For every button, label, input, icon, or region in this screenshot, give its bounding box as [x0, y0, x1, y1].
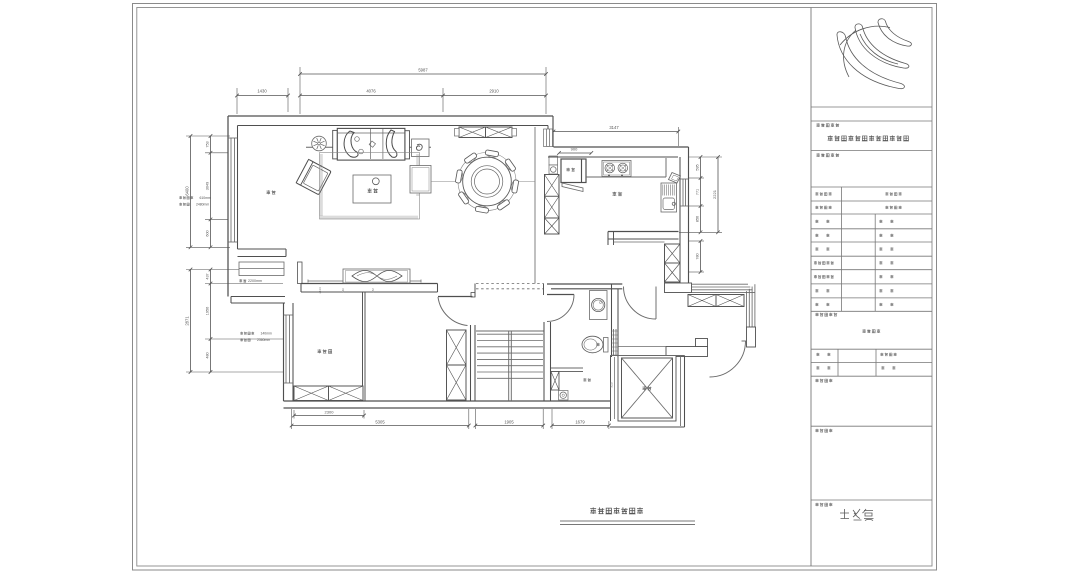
svg-text:3147: 3147	[609, 125, 619, 130]
svg-text:6400: 6400	[185, 186, 190, 196]
svg-text:2480mm: 2480mm	[196, 203, 209, 207]
svg-text:1679: 1679	[575, 420, 585, 425]
svg-text:752: 752	[371, 288, 375, 293]
svg-text:771: 771	[696, 189, 700, 195]
svg-text:780: 780	[696, 253, 700, 259]
svg-text:1905: 1905	[504, 420, 514, 425]
svg-text:5305: 5305	[375, 420, 385, 425]
svg-text:2221: 2221	[712, 189, 717, 199]
svg-text:1956: 1956	[206, 307, 210, 315]
svg-text:1430: 1430	[257, 89, 267, 94]
svg-text:437: 437	[206, 273, 210, 279]
svg-text:746: 746	[341, 288, 345, 293]
svg-text:753: 753	[206, 141, 210, 147]
svg-text:920: 920	[610, 382, 614, 388]
svg-text:2114: 2114	[318, 287, 322, 293]
svg-text:2300: 2300	[325, 410, 335, 415]
svg-text:595: 595	[696, 164, 700, 170]
svg-text:610mm: 610mm	[200, 196, 211, 200]
svg-text:2871: 2871	[185, 316, 190, 326]
svg-text:140mm: 140mm	[261, 332, 272, 336]
svg-text:3049: 3049	[206, 182, 210, 190]
svg-text:856: 856	[696, 216, 700, 222]
svg-text:480: 480	[206, 352, 210, 358]
svg-text:600: 600	[206, 230, 210, 236]
svg-text:2910: 2910	[489, 89, 499, 94]
svg-text:2360mm: 2360mm	[257, 338, 270, 342]
svg-text:4076: 4076	[366, 89, 376, 94]
svg-text:2200mm: 2200mm	[248, 279, 262, 283]
svg-text:5987: 5987	[418, 68, 428, 73]
